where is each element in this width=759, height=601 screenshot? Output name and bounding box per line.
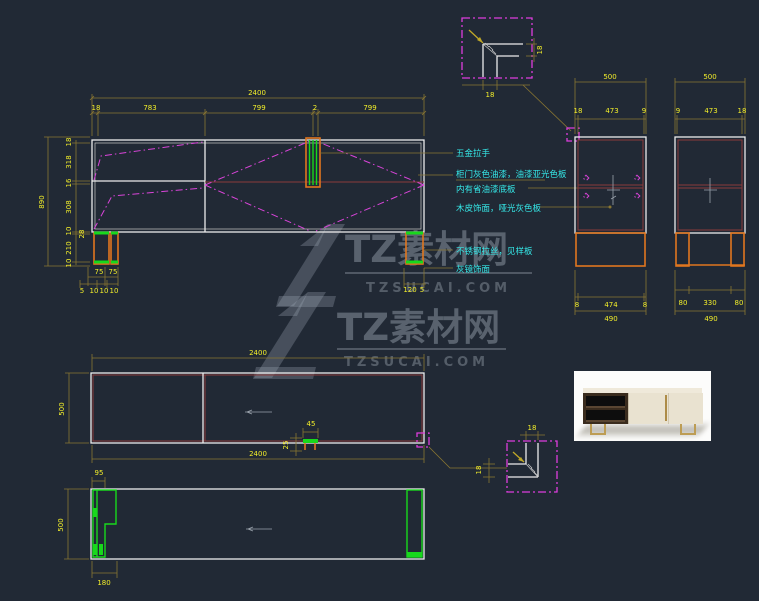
dim-label: 799 [252,104,265,112]
dim-label: 210 [65,241,73,254]
cabinet-doors [628,393,703,424]
dim-label: 500 [57,518,65,531]
dim-label: 799 [363,104,376,112]
dim-label: 80 [735,299,744,307]
dim-label: 308 [65,200,73,213]
watermark-domain: TZSUCAI.COM [344,355,489,370]
dim-label: 95 [95,469,104,477]
dim-label: 890 [38,195,46,208]
annotation-text: 木皮饰面，哑光灰色板 [456,203,542,214]
dim-label: 9 [642,107,646,115]
dim-label: 9 [676,107,680,115]
watermark-brand: TZ素材网 [337,306,500,349]
base-plan-view: 95 500 180 [57,469,424,587]
cabinet-leg [680,424,696,435]
door-handle [665,395,667,421]
dim-label: 500 [703,73,716,81]
dim-label: 2400 [249,349,267,357]
dim-label: 18 [528,424,537,432]
dim-label: 10 [65,259,73,268]
product-photo [574,371,711,441]
annotation-text: 灰镜饰面 [456,264,491,275]
dim-label: 18 [65,138,73,147]
dim-label: 180 [97,579,110,587]
dim-label: 18 [486,91,495,99]
dim-label: 18 [738,107,747,115]
corner-detail-bottom: 18 18 [475,424,557,492]
dim-label: 5 [80,287,84,295]
dim-label: 80 [679,299,688,307]
dim-label: 10 [110,287,119,295]
cad-linework: TZ素材网 TZSUCAI.COM TZ素材网 TZSUCAI.COM 2400… [0,0,759,601]
cabinet-shelf [586,396,625,408]
dim-label: 28 [78,230,86,239]
dim-label: 2400 [248,89,266,97]
dim-label: 10 [65,227,73,236]
cabinet-wood-section [583,393,628,424]
dim-label: 500 [58,402,66,415]
dim-label: 474 [604,301,618,309]
dim-label: 18 [92,104,101,112]
dim-label: 2400 [249,450,267,458]
dim-label: 18 [536,46,544,55]
side-view-right: 500 9 473 18 80 330 80 490 [675,73,746,323]
dim-label: 5 [420,286,424,294]
dim-label: 500 [603,73,616,81]
dim-label: 16 [65,178,73,187]
door-seam [668,393,669,424]
dim-label: 45 [307,420,316,428]
cabinet-shelf [586,410,625,422]
cabinet-leg [590,424,606,435]
dim-label: 75 [109,268,118,276]
cad-drawing-canvas[interactable]: TZ素材网 TZSUCAI.COM TZ素材网 TZSUCAI.COM 2400… [0,0,759,601]
dim-label: 10 [90,287,99,295]
corner-detail-top: 18 18 [462,18,579,141]
watermark-domain: TZSUCAI.COM [366,281,511,296]
dim-label: 120 [403,286,416,294]
annotation-text: 内有省油漆底板 [456,184,516,195]
dim-label: 18 [574,107,583,115]
annotation-text: 柜门灰色油漆，油漆亚光色板 [456,169,567,180]
dim-label: 783 [143,104,156,112]
dim-label: 25 [282,441,290,450]
dim-label: 473 [704,107,717,115]
dim-label: 318 [65,155,73,168]
dim-label: 473 [605,107,618,115]
dim-label: 75 [95,268,104,276]
annotation-text: 不锈钢拉丝，见样板 [456,246,533,257]
dim-label: 8 [575,301,579,309]
side-view-left: 500 18 473 9 8 474 8 490 [574,73,648,323]
dim-label: 2 [313,104,317,112]
dim-label: 490 [704,315,717,323]
dim-label: 18 [475,466,483,475]
dim-label: 330 [703,299,716,307]
dim-label: 10 [100,287,109,295]
annotation-text: 五金拉手 [456,148,491,159]
dim-label: 490 [604,315,617,323]
dim-label: 8 [643,301,647,309]
